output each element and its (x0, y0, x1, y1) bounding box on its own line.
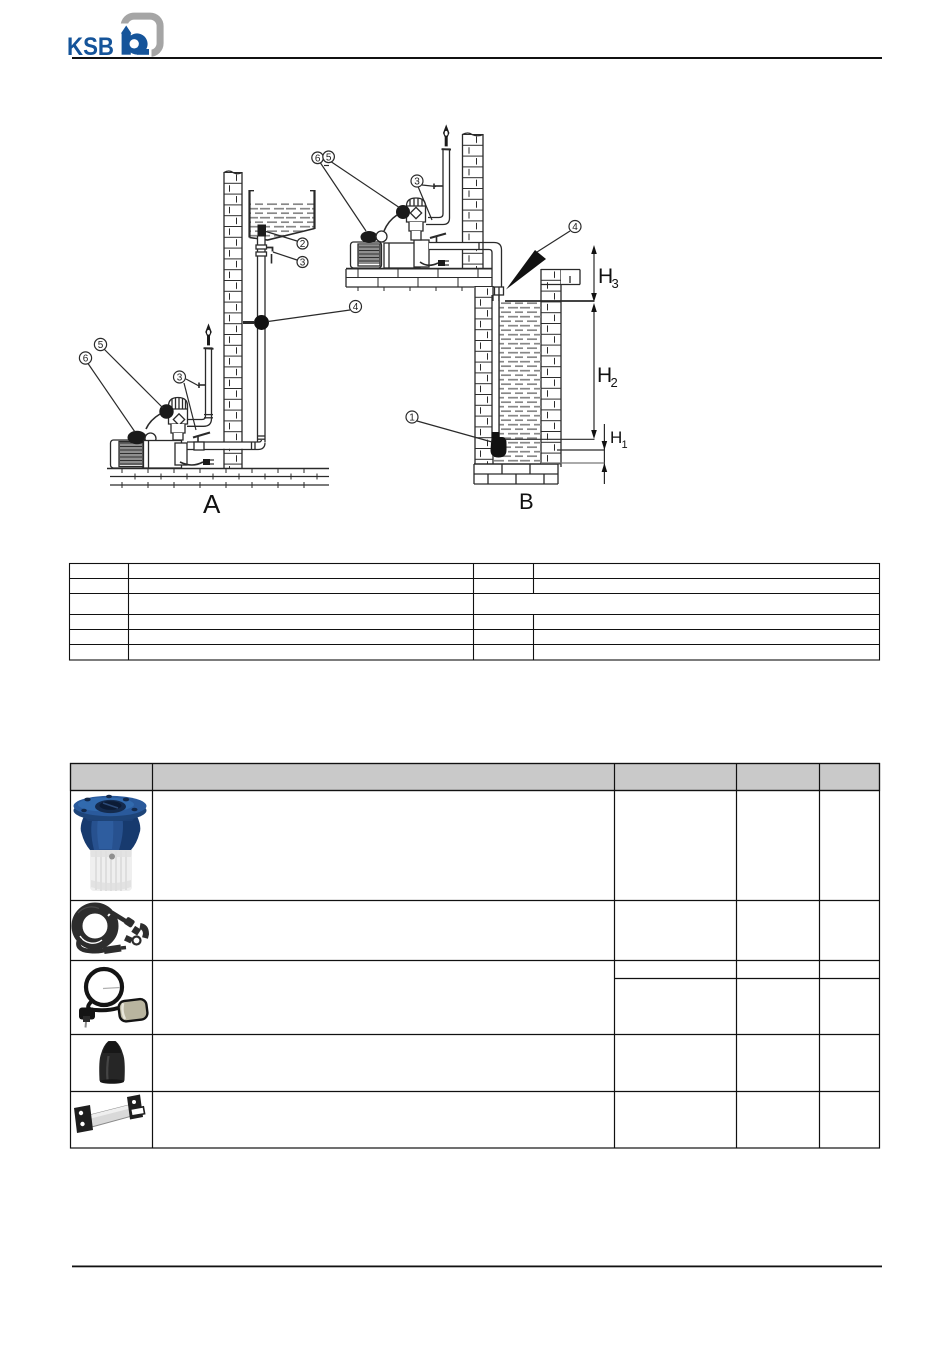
svg-text:5: 5 (326, 152, 332, 163)
svg-text:KSB: KSB (67, 33, 114, 61)
svg-text:3: 3 (612, 276, 619, 291)
svg-text:1: 1 (409, 413, 415, 424)
svg-text:H: H (610, 428, 622, 447)
svg-text:4: 4 (572, 222, 578, 233)
svg-text:5: 5 (98, 340, 104, 351)
svg-text:3: 3 (300, 258, 306, 269)
svg-text:B: B (519, 489, 534, 514)
svg-text:6: 6 (83, 354, 89, 365)
svg-text:3: 3 (177, 373, 183, 384)
svg-text:1: 1 (622, 439, 628, 451)
svg-text:2: 2 (611, 375, 618, 390)
svg-text:4: 4 (353, 302, 359, 313)
svg-text:6: 6 (315, 153, 321, 164)
svg-text:3: 3 (414, 177, 420, 188)
svg-text:2: 2 (300, 239, 306, 250)
svg-text:A: A (203, 489, 221, 519)
